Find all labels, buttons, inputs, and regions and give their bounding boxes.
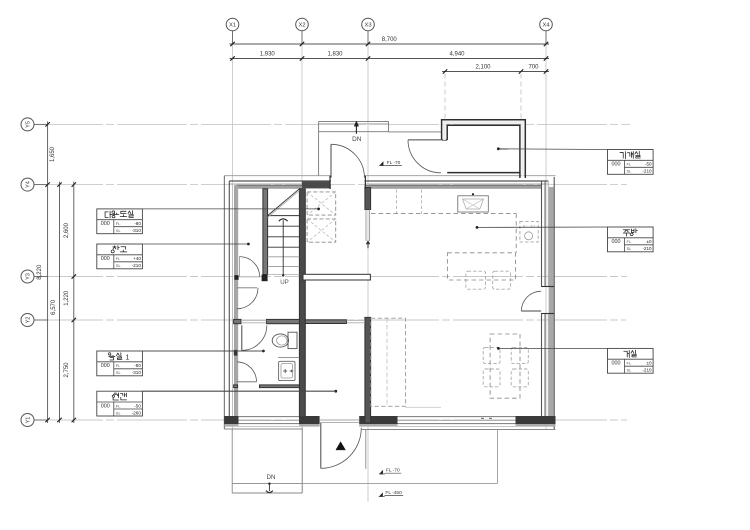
svg-text:FL: FL <box>627 361 632 366</box>
svg-text:000: 000 <box>612 361 621 367</box>
svg-text:Y4: Y4 <box>26 181 32 188</box>
svg-text:Y3: Y3 <box>26 273 32 280</box>
svg-text:000: 000 <box>101 403 110 409</box>
svg-text:000: 000 <box>101 363 110 369</box>
svg-text:-80: -80 <box>134 363 141 368</box>
svg-text:±0: ±0 <box>647 239 653 244</box>
svg-text:8,220: 8,220 <box>37 264 43 280</box>
svg-text:DN: DN <box>267 474 276 481</box>
svg-text:SL: SL <box>116 370 122 375</box>
svg-text:-310: -310 <box>132 370 142 375</box>
svg-text:000: 000 <box>101 221 110 227</box>
svg-text:Y5: Y5 <box>26 121 32 128</box>
svg-text:±0: ±0 <box>647 361 653 366</box>
svg-text:2,100: 2,100 <box>475 65 491 71</box>
svg-text:X3: X3 <box>364 23 371 29</box>
svg-text:2,600: 2,600 <box>64 222 70 238</box>
svg-text:1,220: 1,220 <box>64 290 70 306</box>
svg-text:SL: SL <box>116 263 122 268</box>
svg-text:DN: DN <box>352 136 362 143</box>
svg-text:-80: -80 <box>134 221 141 226</box>
svg-text:FL -70: FL -70 <box>386 468 400 474</box>
svg-text:1: 1 <box>125 354 129 361</box>
svg-text:FL: FL <box>116 403 121 408</box>
svg-text:FL: FL <box>116 221 121 226</box>
svg-text:-50: -50 <box>645 162 652 167</box>
svg-text:000: 000 <box>612 239 621 245</box>
svg-text:X2: X2 <box>298 23 305 29</box>
svg-text:FL: FL <box>116 363 121 368</box>
svg-text:6,570: 6,570 <box>51 299 57 315</box>
svg-text:SL: SL <box>116 228 122 233</box>
svg-text:SL: SL <box>116 410 122 415</box>
svg-text:2,750: 2,750 <box>64 362 70 378</box>
svg-text:-210: -210 <box>642 368 652 373</box>
svg-text:+40: +40 <box>133 256 141 261</box>
svg-text:FL -450: FL -450 <box>385 490 402 496</box>
svg-text:X1: X1 <box>229 23 236 29</box>
svg-text:-310: -310 <box>132 228 142 233</box>
svg-text:-50: -50 <box>134 403 141 408</box>
svg-text:SL: SL <box>627 368 633 373</box>
svg-text:Y2: Y2 <box>26 317 32 324</box>
svg-text:UP: UP <box>280 279 289 286</box>
svg-text:-210: -210 <box>642 169 652 174</box>
svg-text:X4: X4 <box>542 23 550 29</box>
svg-text:4,940: 4,940 <box>449 52 465 58</box>
svg-text:SL: SL <box>627 246 633 251</box>
svg-text:000: 000 <box>101 256 110 262</box>
svg-text:Y1: Y1 <box>26 417 32 424</box>
svg-text:1,930: 1,930 <box>260 52 276 58</box>
svg-text:700: 700 <box>528 65 539 71</box>
svg-text:FL: FL <box>627 239 632 244</box>
svg-text:1,830: 1,830 <box>327 52 343 58</box>
svg-text:FL: FL <box>116 256 121 261</box>
svg-text:-210: -210 <box>132 263 142 268</box>
svg-text:-210: -210 <box>642 246 652 251</box>
svg-text:-260: -260 <box>132 410 142 415</box>
svg-text:SL: SL <box>627 169 633 174</box>
svg-text:FL: FL <box>627 162 632 167</box>
svg-text:000: 000 <box>612 162 621 168</box>
svg-text:1,650: 1,650 <box>50 146 56 162</box>
svg-text:8,700: 8,700 <box>382 37 398 43</box>
